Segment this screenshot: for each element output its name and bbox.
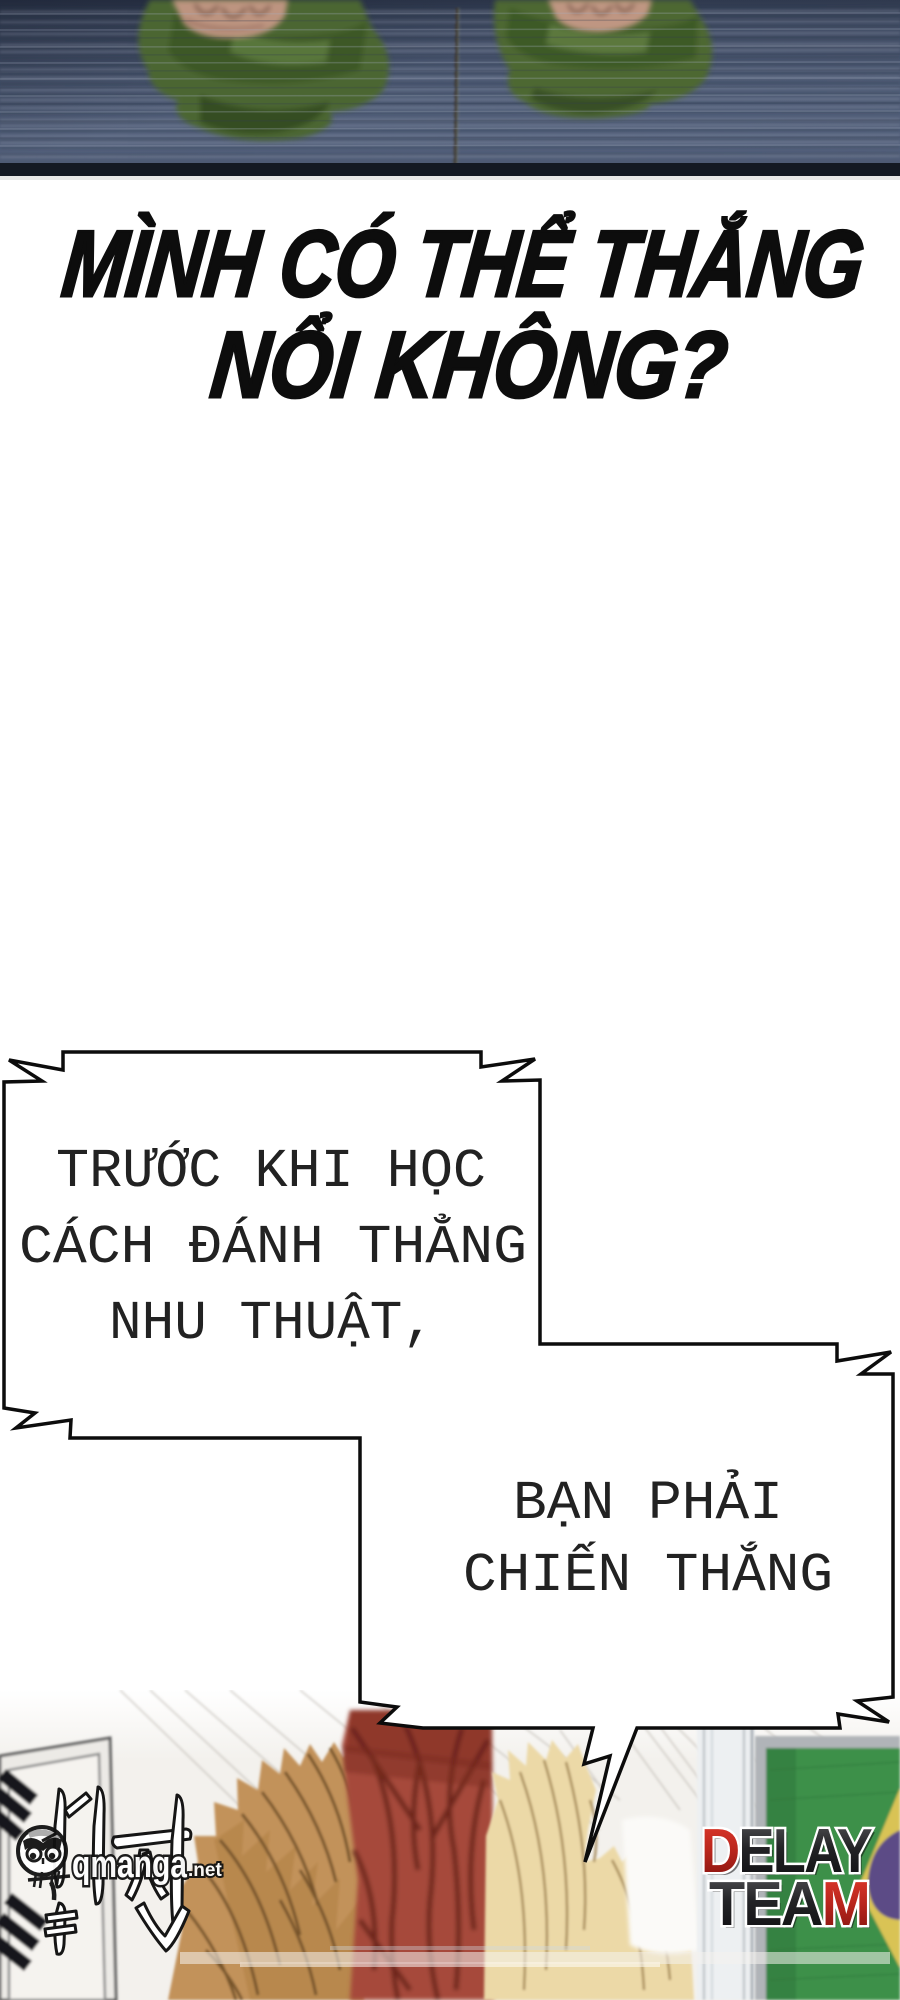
svg-text:MÌNH CÓ THỂ THẮNG: MÌNH CÓ THỂ THẮNG (58, 210, 869, 316)
svg-text:CÁCH ĐÁNH THẲNG: CÁCH ĐÁNH THẲNG (19, 1212, 527, 1279)
svg-text:NỔI KHÔNG?: NỔI KHÔNG? (206, 312, 732, 417)
svg-text:CHIẾN THẮNG: CHIẾN THẮNG (463, 1540, 833, 1607)
svg-text:TRƯỚC KHI HỌC: TRƯỚC KHI HỌC (56, 1139, 486, 1203)
svg-text:BẠN PHẢI: BẠN PHẢI (513, 1468, 783, 1535)
svg-text:NHU THUẬT,: NHU THUẬT, (109, 1291, 435, 1355)
